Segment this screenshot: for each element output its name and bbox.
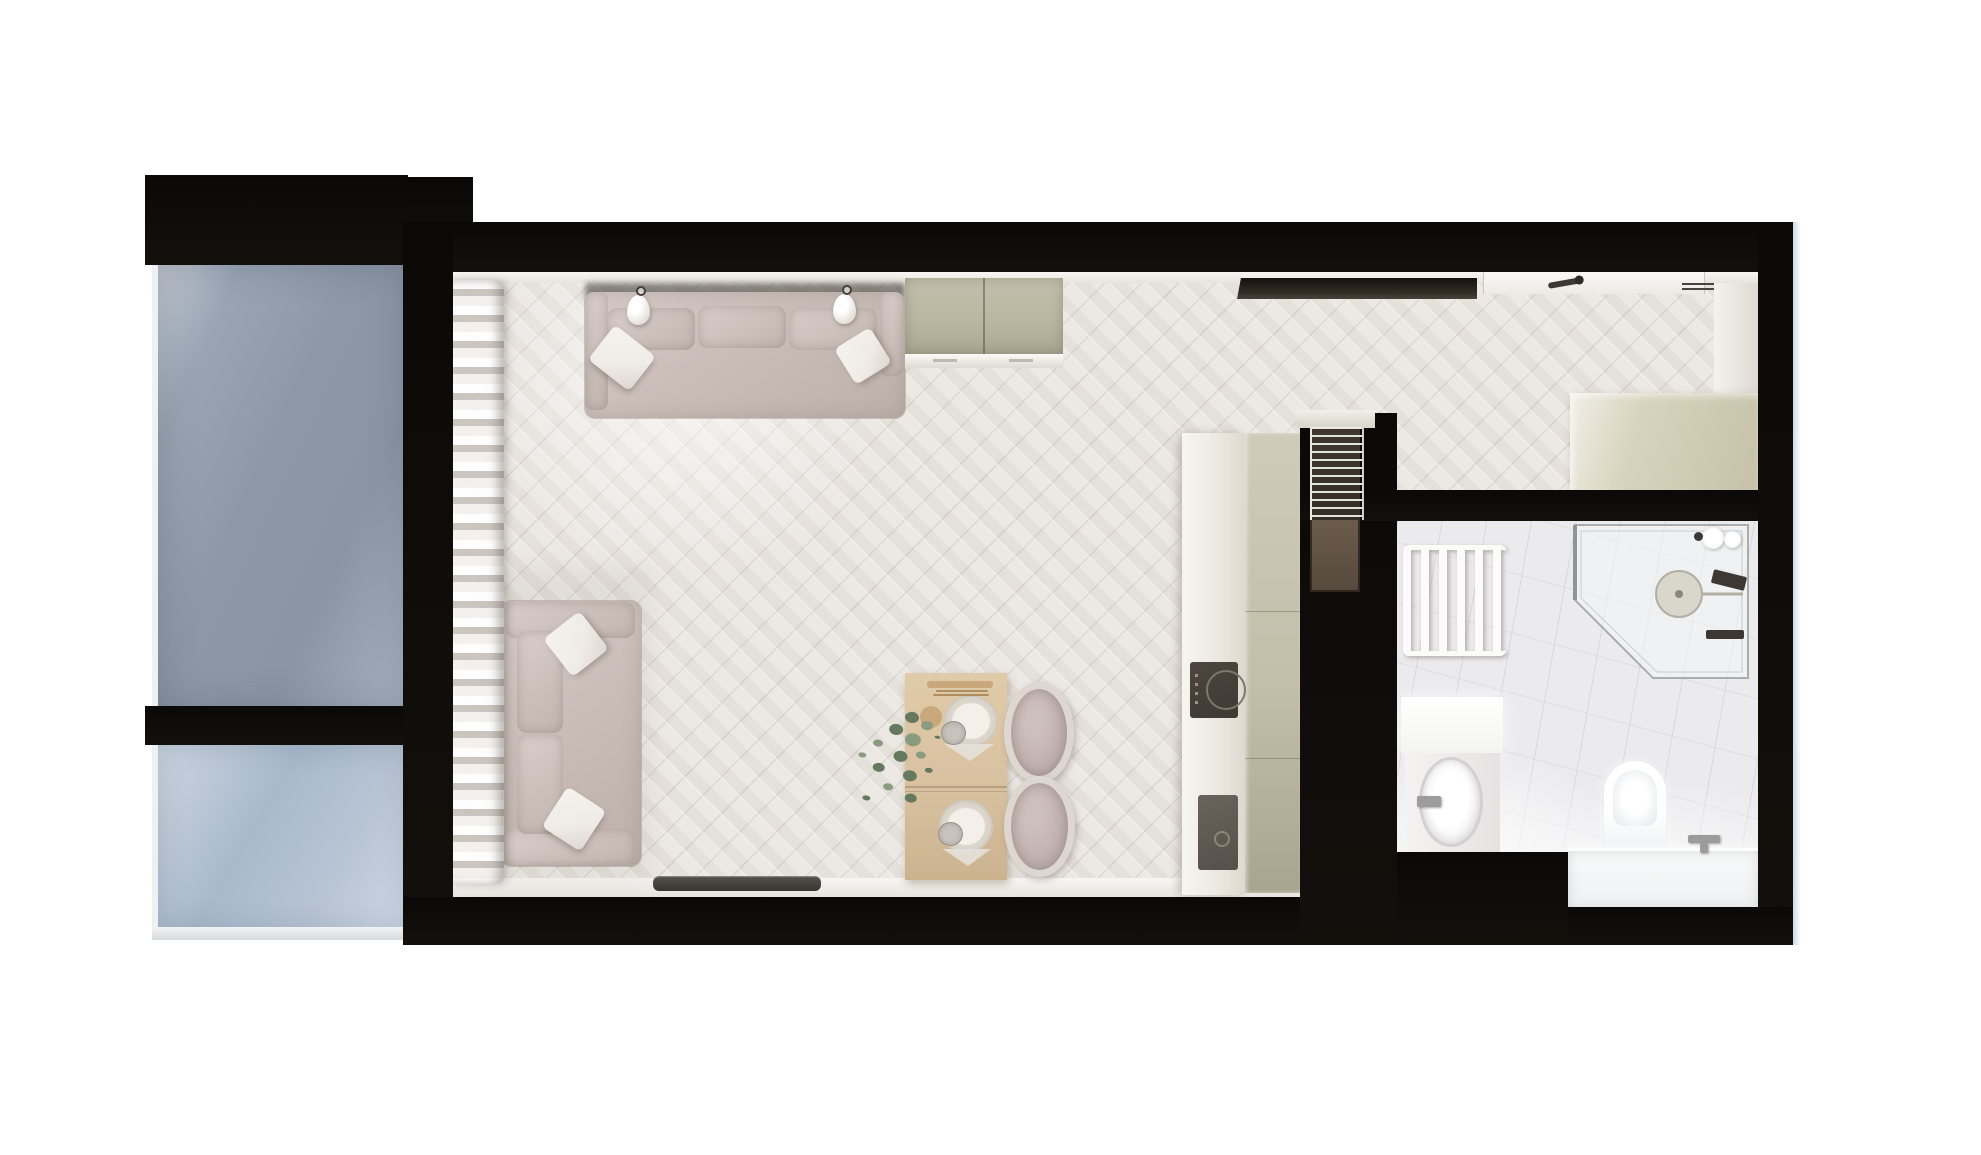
cutting-board xyxy=(927,681,993,688)
ceiling-vent xyxy=(1682,283,1714,292)
pendant-lamp xyxy=(627,295,650,325)
balcony-glass-upper xyxy=(152,258,409,711)
pendant-lamp xyxy=(833,294,856,324)
wall-top xyxy=(403,222,1793,272)
utensil xyxy=(936,690,988,692)
balcony-bottom-frame xyxy=(152,927,403,940)
niche-ledge-top xyxy=(1297,410,1375,426)
wall-bathroom-bottom-right xyxy=(1568,907,1793,945)
wall-right xyxy=(1758,222,1793,945)
table-plank-seam xyxy=(905,791,1007,792)
sideboard-door-seam xyxy=(983,278,985,354)
round-serving-board xyxy=(920,706,942,728)
balcony-mullion xyxy=(145,706,408,745)
sideboard-top xyxy=(905,278,1063,354)
toiletry-jar xyxy=(1724,531,1741,548)
cup xyxy=(941,721,966,745)
balcony-top-frame xyxy=(145,175,408,265)
wall-bottom xyxy=(403,897,1397,945)
balcony-glass-lower xyxy=(152,745,409,930)
bathtub xyxy=(1568,848,1758,910)
toilet xyxy=(1604,761,1666,854)
curtains xyxy=(448,280,504,884)
wall-bathroom-top xyxy=(1300,490,1758,521)
shower-head-center xyxy=(1675,590,1683,598)
wall-left xyxy=(403,222,453,945)
floorplan-render xyxy=(0,0,1981,1155)
entrance-door xyxy=(1483,272,1705,294)
basin-faucet xyxy=(1417,796,1441,807)
vanity-counter xyxy=(1401,697,1503,753)
dining-chair xyxy=(1004,682,1074,783)
toiletry-dark xyxy=(1694,532,1703,541)
towel-radiator xyxy=(1403,545,1506,656)
cabinet-seam xyxy=(1245,611,1300,612)
sofa-back-cushion xyxy=(698,306,786,348)
toiletry-jar xyxy=(1702,527,1724,549)
wire-rack xyxy=(1310,427,1364,520)
sideboard-handle xyxy=(933,359,957,362)
cabinet-seam xyxy=(1245,758,1300,759)
hall-wardrobe xyxy=(1570,393,1758,500)
balcony-door-threshold xyxy=(653,876,821,891)
induction-hob xyxy=(1190,662,1238,718)
sideboard-handle xyxy=(1009,359,1033,362)
niche-lower-panel xyxy=(1312,520,1358,590)
sideboard-front xyxy=(905,354,1063,368)
kitchen-sink xyxy=(1198,795,1238,870)
cup xyxy=(938,822,963,846)
utensil xyxy=(933,694,989,696)
transom-glass-strip xyxy=(1237,276,1477,299)
kitchen-tall-cabinet xyxy=(1245,433,1300,893)
right-edge-highlight xyxy=(1793,222,1801,945)
dining-chair xyxy=(1004,776,1075,877)
shower-valve xyxy=(1706,630,1744,639)
wall-bathroom-bottom-left xyxy=(1397,852,1568,945)
tub-spout xyxy=(1700,843,1708,853)
table-plank-seam xyxy=(905,786,1007,788)
tub-faucet xyxy=(1688,835,1720,843)
